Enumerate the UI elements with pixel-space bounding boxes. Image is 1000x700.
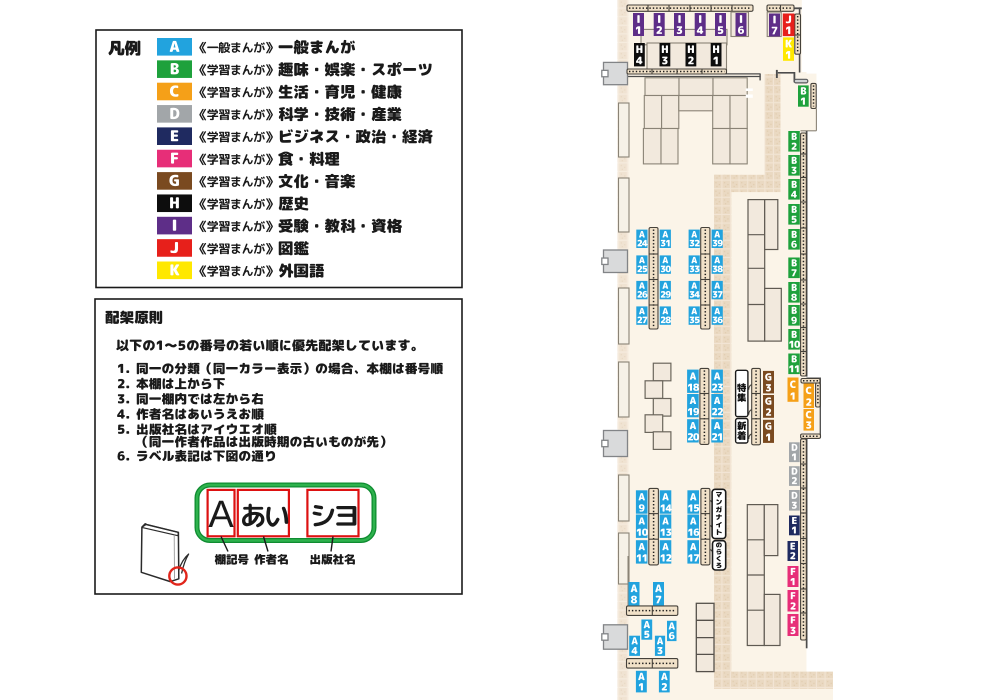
svg-text:A: A — [208, 494, 234, 536]
